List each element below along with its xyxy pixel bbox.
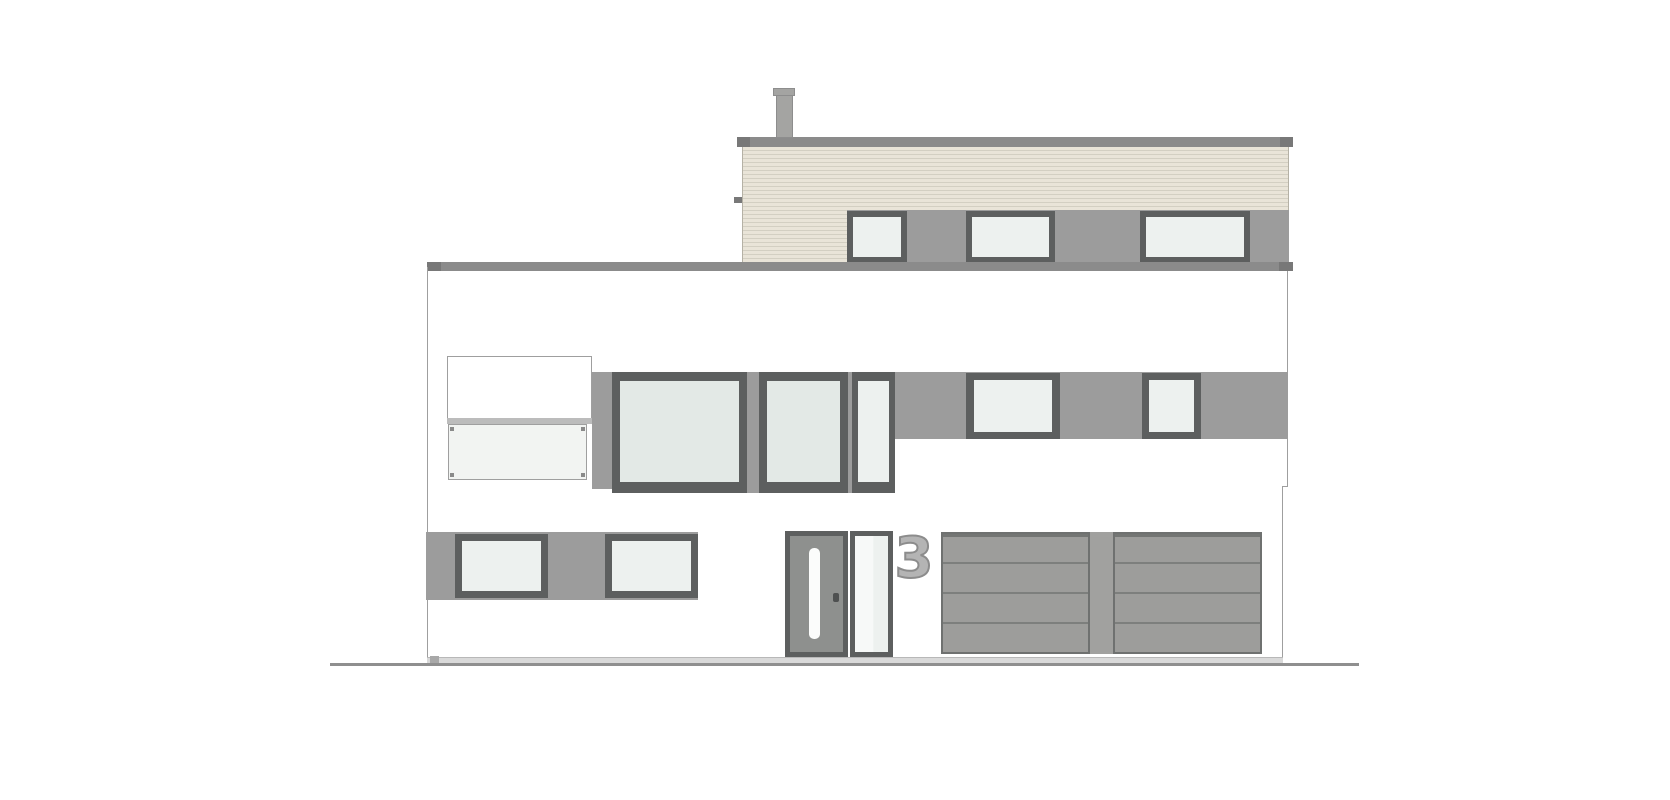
upper-window-3-glass — [1146, 217, 1244, 257]
wall-right-line-lower — [1282, 487, 1283, 658]
railing-fixing-dot-tr — [581, 427, 585, 431]
main-roof-end-left — [427, 262, 441, 271]
main-window-mullion-1 — [747, 372, 759, 493]
entry-sidelight-glass — [855, 536, 888, 652]
garage-door-left — [941, 532, 1090, 654]
upper-window-2-glass — [972, 217, 1049, 257]
main-roof-end-right — [1279, 262, 1293, 271]
chimney-cap — [773, 88, 795, 96]
middle-band-right — [895, 372, 1288, 439]
upper-window-1-glass — [853, 217, 901, 257]
railing-fixing-dot-bl — [450, 473, 454, 477]
garage-pillar — [1090, 532, 1113, 654]
chimney — [776, 94, 793, 138]
upper-roof-slab — [737, 137, 1293, 147]
main-roof-slab — [427, 262, 1293, 271]
balcony-glass-railing — [448, 424, 587, 480]
main-window-2-glass — [767, 381, 840, 482]
ground-line — [330, 663, 1359, 666]
entry-door-glass-stripe — [809, 548, 820, 639]
railing-fixing-dot-br — [581, 473, 585, 477]
balcony-parapet — [447, 356, 592, 422]
ground-window-2-glass — [612, 541, 691, 591]
elevation-canvas: 3 — [0, 0, 1670, 800]
main-window-1-glass — [620, 381, 739, 482]
railing-fixing-dot-tl — [450, 427, 454, 431]
cladding-tick — [734, 197, 742, 203]
main-window-left-strip — [592, 372, 612, 489]
middle-window-2-glass — [1149, 380, 1194, 432]
ground-window-1-glass — [462, 541, 541, 591]
middle-window-1-glass — [974, 380, 1052, 432]
entry-door-handle — [833, 593, 839, 602]
upper-roof-end-left — [737, 137, 750, 147]
main-window-3-glass — [858, 381, 889, 482]
upper-roof-end-right — [1280, 137, 1293, 147]
garage-door-right — [1113, 532, 1262, 654]
